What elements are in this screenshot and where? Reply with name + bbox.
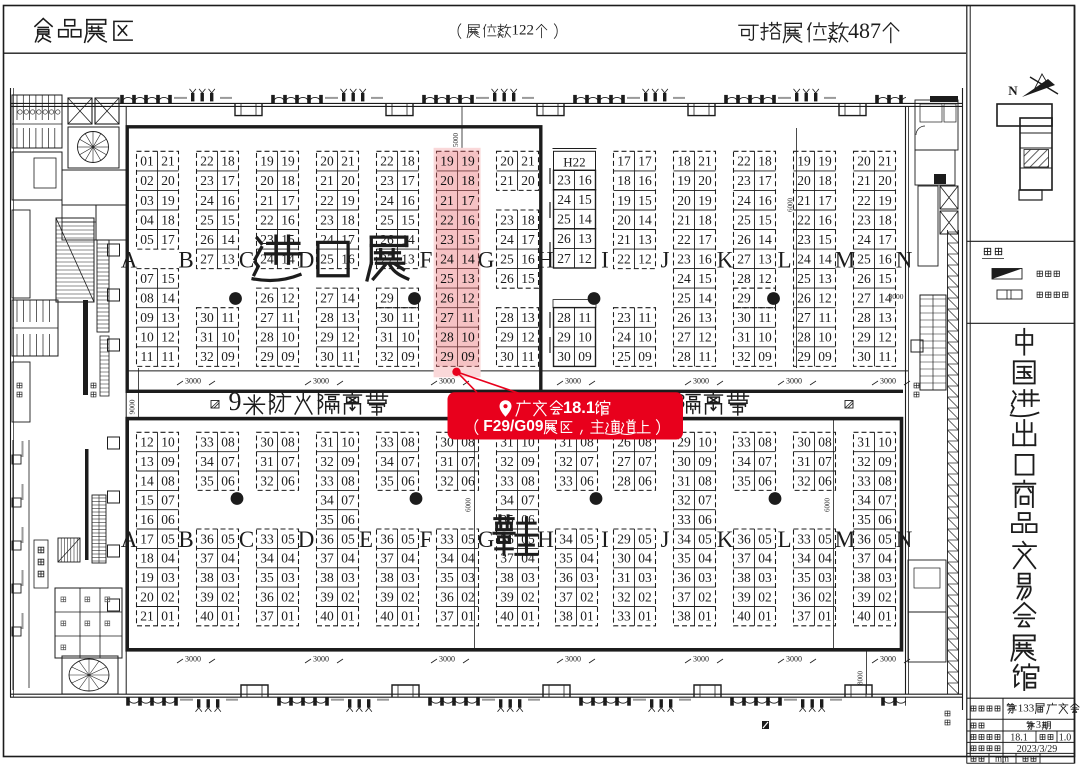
svg-text:17: 17 — [758, 173, 772, 188]
svg-text:05: 05 — [580, 531, 594, 546]
svg-text:16: 16 — [698, 251, 712, 266]
svg-text:04: 04 — [140, 212, 154, 227]
svg-text:20: 20 — [161, 173, 175, 188]
svg-text:38: 38 — [380, 570, 394, 585]
svg-text:37: 37 — [500, 551, 514, 566]
svg-text:05: 05 — [161, 531, 175, 546]
svg-text:08: 08 — [281, 435, 295, 450]
svg-text:31: 31 — [320, 435, 334, 450]
svg-text:16: 16 — [578, 173, 592, 188]
svg-text:16: 16 — [638, 173, 652, 188]
svg-text:21: 21 — [161, 154, 175, 169]
svg-text:04: 04 — [818, 551, 832, 566]
svg-text:18: 18 — [617, 173, 631, 188]
svg-text:03: 03 — [580, 570, 594, 585]
svg-text:34: 34 — [380, 454, 394, 469]
svg-text:12: 12 — [161, 330, 175, 345]
svg-text:24: 24 — [200, 193, 214, 208]
svg-text:06: 06 — [281, 473, 295, 488]
svg-text:10: 10 — [281, 330, 295, 345]
svg-text:32: 32 — [797, 473, 811, 488]
svg-text:27: 27 — [617, 454, 631, 469]
svg-text:08: 08 — [161, 473, 175, 488]
svg-text:12: 12 — [638, 251, 652, 266]
svg-text:03: 03 — [401, 570, 415, 585]
svg-text:05: 05 — [461, 531, 475, 546]
svg-text:24: 24 — [857, 232, 871, 247]
svg-text:40: 40 — [737, 609, 751, 624]
svg-text:10: 10 — [878, 435, 892, 450]
svg-text:36: 36 — [260, 589, 274, 604]
svg-text:10: 10 — [758, 330, 772, 345]
svg-text:07: 07 — [698, 493, 712, 508]
svg-text:G: G — [478, 527, 495, 552]
svg-text:04: 04 — [161, 551, 175, 566]
svg-text:07: 07 — [221, 454, 235, 469]
svg-text:37: 37 — [737, 551, 751, 566]
svg-text:14: 14 — [698, 291, 712, 306]
svg-text:11: 11 — [759, 310, 772, 325]
svg-text:23: 23 — [617, 310, 631, 325]
svg-text:36: 36 — [380, 531, 394, 546]
svg-text:05: 05 — [698, 531, 712, 546]
svg-text:22: 22 — [380, 154, 394, 169]
svg-text:29: 29 — [737, 291, 751, 306]
svg-text:28: 28 — [797, 330, 811, 345]
svg-text:09: 09 — [638, 349, 652, 364]
svg-text:32: 32 — [500, 454, 514, 469]
svg-text:05: 05 — [878, 531, 892, 546]
svg-text:09: 09 — [221, 349, 235, 364]
svg-text:08: 08 — [818, 435, 832, 450]
svg-text:18: 18 — [161, 212, 175, 227]
svg-text:17: 17 — [617, 154, 631, 169]
svg-text:08: 08 — [878, 473, 892, 488]
svg-text:33: 33 — [857, 473, 871, 488]
svg-text:34: 34 — [200, 454, 214, 469]
svg-text:14: 14 — [341, 291, 355, 306]
svg-text:37: 37 — [380, 551, 394, 566]
svg-text:08: 08 — [401, 435, 415, 450]
svg-text:04: 04 — [698, 551, 712, 566]
svg-text:32: 32 — [677, 493, 691, 508]
svg-text:23: 23 — [737, 173, 751, 188]
svg-text:24: 24 — [797, 251, 811, 266]
svg-text:33: 33 — [737, 435, 751, 450]
svg-text:25: 25 — [617, 349, 631, 364]
svg-text:09: 09 — [161, 454, 175, 469]
svg-text:01: 01 — [140, 154, 154, 169]
svg-text:23: 23 — [500, 212, 514, 227]
svg-text:H: H — [537, 527, 554, 552]
svg-text:N: N — [1008, 83, 1018, 98]
svg-text:11: 11 — [879, 349, 892, 364]
svg-text:25: 25 — [857, 251, 871, 266]
svg-text:10: 10 — [461, 330, 475, 345]
svg-text:29: 29 — [500, 330, 514, 345]
svg-text:5000: 5000 — [452, 133, 460, 148]
svg-text:37: 37 — [857, 551, 871, 566]
svg-text:11: 11 — [819, 310, 832, 325]
svg-text:30: 30 — [260, 435, 274, 450]
svg-text:2023/3/29: 2023/3/29 — [1017, 744, 1058, 755]
svg-text:07: 07 — [758, 454, 772, 469]
svg-text:32: 32 — [380, 349, 394, 364]
svg-text:3000: 3000 — [439, 376, 455, 385]
svg-text:14: 14 — [758, 232, 772, 247]
svg-text:13: 13 — [818, 271, 832, 286]
svg-text:39: 39 — [737, 589, 751, 604]
svg-text:18: 18 — [818, 173, 832, 188]
svg-text:11: 11 — [282, 310, 295, 325]
svg-text:35: 35 — [559, 551, 573, 566]
svg-text:3000: 3000 — [786, 655, 802, 664]
svg-text:03: 03 — [140, 193, 154, 208]
svg-text:34: 34 — [737, 454, 751, 469]
svg-text:38: 38 — [500, 570, 514, 585]
svg-text:24: 24 — [440, 251, 454, 266]
svg-text:22: 22 — [260, 212, 274, 227]
svg-text:20: 20 — [140, 589, 154, 604]
svg-text:20: 20 — [698, 173, 712, 188]
svg-text:31: 31 — [677, 473, 691, 488]
svg-text:C: C — [239, 248, 254, 273]
svg-text:05: 05 — [140, 232, 154, 247]
svg-text:18: 18 — [698, 212, 712, 227]
svg-text:21: 21 — [521, 154, 535, 169]
svg-text:11: 11 — [462, 310, 475, 325]
svg-text:29: 29 — [617, 531, 631, 546]
svg-text:16: 16 — [758, 193, 772, 208]
svg-text:19: 19 — [461, 154, 475, 169]
svg-text:19: 19 — [617, 193, 631, 208]
svg-text:15: 15 — [221, 212, 235, 227]
svg-text:23: 23 — [677, 251, 691, 266]
svg-text:18: 18 — [758, 154, 772, 169]
svg-text:18: 18 — [221, 154, 235, 169]
svg-text:31: 31 — [797, 454, 811, 469]
svg-text:07: 07 — [580, 454, 594, 469]
svg-text:3000: 3000 — [185, 655, 201, 664]
svg-text:L: L — [777, 248, 791, 273]
svg-text:01: 01 — [698, 609, 712, 624]
svg-text:14: 14 — [818, 251, 832, 266]
svg-text:13: 13 — [161, 310, 175, 325]
svg-text:37: 37 — [320, 551, 334, 566]
svg-text:11: 11 — [222, 310, 235, 325]
svg-text:12: 12 — [818, 291, 832, 306]
svg-text:06: 06 — [878, 512, 892, 527]
svg-text:05: 05 — [758, 531, 772, 546]
svg-text:06: 06 — [698, 512, 712, 527]
svg-text:03: 03 — [461, 570, 475, 585]
svg-text:40: 40 — [200, 609, 214, 624]
svg-text:22: 22 — [857, 193, 871, 208]
svg-text:21: 21 — [677, 212, 691, 227]
svg-text:17: 17 — [161, 232, 175, 247]
svg-text:28: 28 — [617, 473, 631, 488]
svg-text:12: 12 — [461, 291, 475, 306]
svg-text:07: 07 — [341, 493, 355, 508]
svg-text:01: 01 — [281, 609, 295, 624]
svg-text:24: 24 — [380, 193, 394, 208]
svg-text:24: 24 — [737, 193, 751, 208]
svg-text:03: 03 — [818, 570, 832, 585]
svg-text:05: 05 — [281, 531, 295, 546]
svg-text:32: 32 — [737, 349, 751, 364]
svg-text:40: 40 — [857, 609, 871, 624]
svg-text:16: 16 — [818, 212, 832, 227]
svg-text:32: 32 — [857, 454, 871, 469]
svg-text:16: 16 — [461, 212, 475, 227]
svg-text:18: 18 — [521, 212, 535, 227]
svg-text:3000: 3000 — [880, 655, 896, 664]
svg-text:15: 15 — [818, 232, 832, 247]
svg-text:18: 18 — [281, 173, 295, 188]
svg-text:24: 24 — [557, 192, 571, 207]
svg-text:33: 33 — [500, 473, 514, 488]
svg-text:19: 19 — [797, 154, 811, 169]
svg-text:F: F — [420, 527, 433, 552]
svg-text:H22: H22 — [563, 155, 585, 170]
svg-text:18: 18 — [341, 212, 355, 227]
svg-text:29: 29 — [380, 291, 394, 306]
svg-text:30: 30 — [200, 310, 214, 325]
svg-text:39: 39 — [380, 589, 394, 604]
svg-text:20: 20 — [320, 154, 334, 169]
svg-text:39: 39 — [200, 589, 214, 604]
svg-text:25: 25 — [797, 271, 811, 286]
svg-text:18: 18 — [461, 173, 475, 188]
svg-text:30: 30 — [500, 349, 514, 364]
svg-text:25: 25 — [737, 212, 751, 227]
svg-text:12: 12 — [698, 330, 712, 345]
svg-text:B: B — [178, 248, 193, 273]
svg-text:22: 22 — [737, 154, 751, 169]
svg-text:16: 16 — [521, 251, 535, 266]
svg-text:33: 33 — [320, 473, 334, 488]
svg-text:3000: 3000 — [313, 655, 329, 664]
svg-text:13: 13 — [140, 454, 154, 469]
svg-text:26: 26 — [557, 231, 571, 246]
svg-text:02: 02 — [401, 589, 415, 604]
svg-text:16: 16 — [281, 212, 295, 227]
svg-text:14: 14 — [140, 473, 154, 488]
svg-text:03: 03 — [341, 570, 355, 585]
svg-text:36: 36 — [320, 531, 334, 546]
svg-text:32: 32 — [440, 473, 454, 488]
svg-text:02: 02 — [161, 589, 175, 604]
svg-text:24: 24 — [320, 232, 334, 247]
svg-text:30: 30 — [320, 349, 334, 364]
svg-text:20: 20 — [878, 173, 892, 188]
svg-text:21: 21 — [341, 154, 355, 169]
svg-text:20: 20 — [617, 212, 631, 227]
svg-text:30: 30 — [737, 310, 751, 325]
svg-text:08: 08 — [341, 473, 355, 488]
svg-text:12: 12 — [878, 330, 892, 345]
svg-text:35: 35 — [380, 473, 394, 488]
svg-text:22: 22 — [617, 251, 631, 266]
svg-text:02: 02 — [878, 589, 892, 604]
svg-text:14: 14 — [638, 212, 652, 227]
svg-text:20: 20 — [440, 173, 454, 188]
svg-text:B: B — [178, 527, 193, 552]
svg-text:28: 28 — [320, 310, 334, 325]
svg-text:11: 11 — [141, 349, 154, 364]
svg-text:A: A — [121, 248, 138, 273]
svg-text:K: K — [717, 248, 734, 273]
svg-text:23: 23 — [440, 232, 454, 247]
svg-text:J: J — [661, 527, 670, 552]
svg-text:28: 28 — [677, 349, 691, 364]
svg-text:05: 05 — [341, 531, 355, 546]
svg-text:09: 09 — [281, 349, 295, 364]
svg-text:19: 19 — [260, 154, 274, 169]
svg-text:30: 30 — [380, 310, 394, 325]
svg-text:13: 13 — [698, 310, 712, 325]
svg-text:33: 33 — [677, 512, 691, 527]
svg-text:07: 07 — [818, 454, 832, 469]
svg-text:02: 02 — [580, 589, 594, 604]
svg-text:21: 21 — [698, 154, 712, 169]
svg-text:06: 06 — [221, 473, 235, 488]
svg-text:15: 15 — [161, 271, 175, 286]
svg-text:29: 29 — [440, 349, 454, 364]
svg-text:21: 21 — [260, 193, 274, 208]
svg-text:06: 06 — [341, 512, 355, 527]
svg-text:02: 02 — [698, 589, 712, 604]
svg-text:28: 28 — [500, 310, 514, 325]
svg-text:3000: 3000 — [565, 376, 581, 385]
svg-text:3000: 3000 — [880, 376, 896, 385]
svg-text:36: 36 — [440, 589, 454, 604]
svg-text:31: 31 — [260, 454, 274, 469]
svg-text:28: 28 — [260, 330, 274, 345]
svg-text:32: 32 — [260, 473, 274, 488]
svg-text:28: 28 — [857, 310, 871, 325]
svg-text:3000: 3000 — [693, 655, 709, 664]
svg-text:18: 18 — [878, 212, 892, 227]
svg-text:03: 03 — [161, 570, 175, 585]
svg-text:35: 35 — [857, 512, 871, 527]
svg-text:I: I — [601, 248, 609, 273]
svg-text:27: 27 — [737, 251, 751, 266]
svg-text:23: 23 — [557, 173, 571, 188]
svg-text:13: 13 — [638, 232, 652, 247]
svg-text:F: F — [420, 248, 433, 273]
svg-text:39: 39 — [320, 589, 334, 604]
svg-text:21: 21 — [320, 173, 334, 188]
svg-text:15: 15 — [578, 192, 592, 207]
svg-text:21: 21 — [617, 232, 631, 247]
svg-text:39: 39 — [857, 589, 871, 604]
svg-text:24: 24 — [617, 330, 631, 345]
svg-text:23: 23 — [857, 212, 871, 227]
svg-text:35: 35 — [260, 570, 274, 585]
svg-text:30: 30 — [857, 349, 871, 364]
svg-text:05: 05 — [638, 531, 652, 546]
svg-text:19: 19 — [818, 154, 832, 169]
svg-text:26: 26 — [857, 271, 871, 286]
svg-text:20: 20 — [857, 154, 871, 169]
svg-text:17: 17 — [698, 232, 712, 247]
svg-text:35: 35 — [677, 551, 691, 566]
svg-text:17: 17 — [401, 173, 415, 188]
svg-text:19: 19 — [440, 154, 454, 169]
svg-text:3000: 3000 — [889, 292, 904, 301]
svg-text:27: 27 — [797, 310, 811, 325]
svg-text:15: 15 — [401, 212, 415, 227]
svg-text:33: 33 — [440, 531, 454, 546]
svg-text:13: 13 — [341, 310, 355, 325]
svg-text:A: A — [121, 527, 138, 552]
svg-text:10: 10 — [140, 330, 154, 345]
svg-text:34: 34 — [559, 531, 573, 546]
svg-text:37: 37 — [260, 609, 274, 624]
svg-text:38: 38 — [737, 570, 751, 585]
svg-text:26: 26 — [677, 310, 691, 325]
svg-text:39: 39 — [500, 589, 514, 604]
svg-text:18: 18 — [401, 154, 415, 169]
svg-text:38: 38 — [200, 570, 214, 585]
svg-text:15: 15 — [878, 271, 892, 286]
svg-text:18: 18 — [677, 154, 691, 169]
svg-text:487: 487 — [848, 18, 881, 43]
svg-text:35: 35 — [320, 512, 334, 527]
svg-text:02: 02 — [140, 173, 154, 188]
svg-text:36: 36 — [797, 589, 811, 604]
svg-text:06: 06 — [580, 473, 594, 488]
svg-text:01: 01 — [638, 609, 652, 624]
svg-text:16: 16 — [401, 193, 415, 208]
svg-text:03: 03 — [521, 570, 535, 585]
svg-text:31: 31 — [617, 570, 631, 585]
svg-text:31: 31 — [737, 330, 751, 345]
svg-text:17: 17 — [878, 232, 892, 247]
svg-text:29: 29 — [320, 330, 334, 345]
svg-text:09: 09 — [578, 349, 592, 364]
svg-text:36: 36 — [737, 531, 751, 546]
svg-text:15: 15 — [461, 232, 475, 247]
svg-text:D: D — [298, 527, 315, 552]
svg-text:15: 15 — [638, 193, 652, 208]
svg-text:29: 29 — [857, 330, 871, 345]
svg-text:21: 21 — [140, 609, 154, 624]
svg-text:19: 19 — [281, 154, 295, 169]
svg-text:11: 11 — [699, 349, 712, 364]
svg-text:22: 22 — [797, 212, 811, 227]
svg-text:33: 33 — [797, 531, 811, 546]
svg-text:20: 20 — [341, 173, 355, 188]
svg-text:13: 13 — [578, 231, 592, 246]
svg-text:26: 26 — [797, 291, 811, 306]
svg-text:19: 19 — [341, 193, 355, 208]
svg-text:mm: mm — [995, 754, 1009, 764]
svg-text:02: 02 — [758, 589, 772, 604]
svg-text:24: 24 — [500, 232, 514, 247]
svg-text:11: 11 — [579, 310, 592, 325]
svg-text:21: 21 — [857, 173, 871, 188]
svg-text:33: 33 — [380, 435, 394, 450]
svg-text:04: 04 — [221, 551, 235, 566]
svg-text:133: 133 — [1018, 702, 1035, 714]
svg-text:01: 01 — [401, 609, 415, 624]
svg-text:33: 33 — [260, 531, 274, 546]
svg-text:26: 26 — [440, 291, 454, 306]
svg-text:11: 11 — [402, 310, 415, 325]
svg-text:03: 03 — [221, 570, 235, 585]
